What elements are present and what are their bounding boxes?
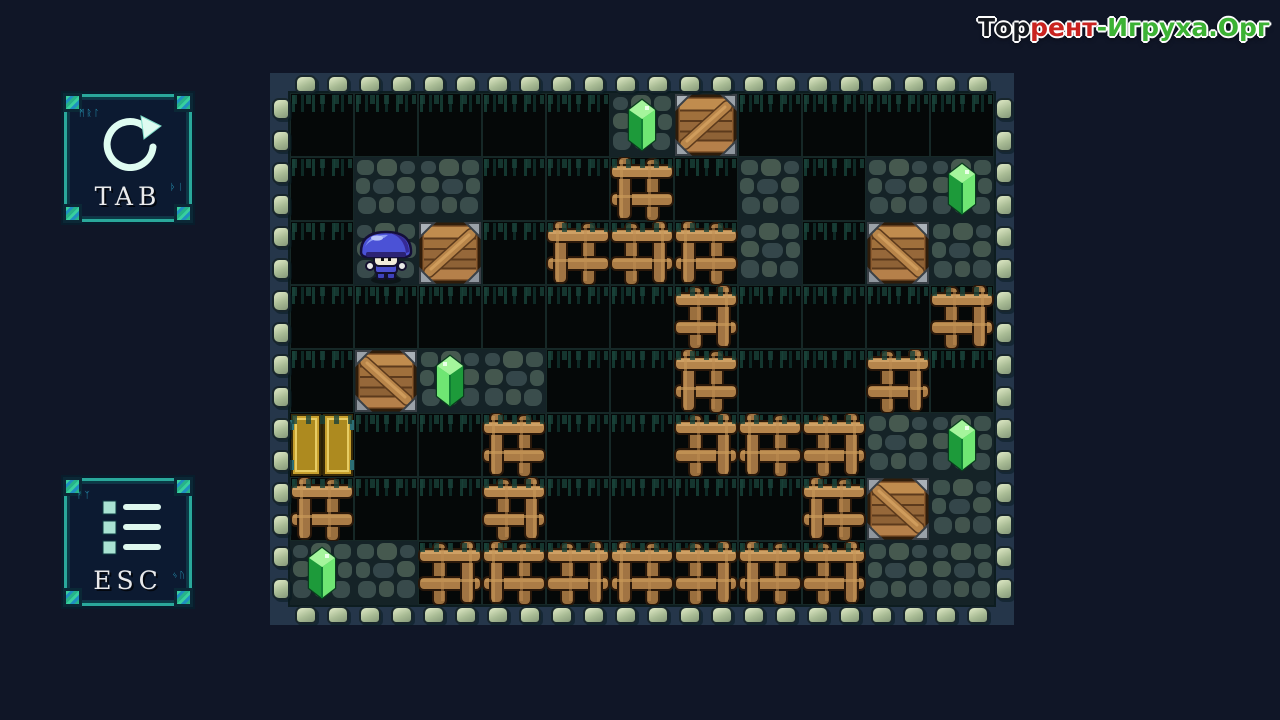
border-bump xyxy=(272,578,290,600)
wall-wood-lattice xyxy=(418,541,482,605)
border-bump xyxy=(775,75,797,93)
border-bump xyxy=(871,606,893,624)
tile-stone-floor xyxy=(866,541,930,605)
menu-hotkey-panel[interactable]: ᚠᛉ ᛃᚢ ESC xyxy=(64,478,192,606)
tile-void xyxy=(802,93,866,157)
tile-void xyxy=(290,285,354,349)
tile-stone-floor xyxy=(866,413,930,477)
wall-wood-lattice xyxy=(290,477,354,541)
border-bump xyxy=(903,75,925,93)
border-bump xyxy=(679,75,701,93)
border-bump xyxy=(551,606,573,624)
gem xyxy=(418,349,482,413)
wall-wood-lattice xyxy=(674,349,738,413)
border-bump xyxy=(995,482,1013,504)
border-bump xyxy=(272,162,290,184)
border-bump xyxy=(272,386,290,408)
border-bump xyxy=(327,75,349,93)
tile-void xyxy=(866,285,930,349)
border-bump xyxy=(295,606,317,624)
game-screen: Торрент-Игруха.Орг ᛗᚱᛚ ᚦᛁ TAB ᚠᛉ ᛃᚢ xyxy=(0,0,1280,720)
border-bump xyxy=(583,606,605,624)
border-bump xyxy=(647,606,669,624)
border-bump xyxy=(995,130,1013,152)
tile-void xyxy=(418,477,482,541)
tile-void xyxy=(546,349,610,413)
wall-wood-lattice xyxy=(802,477,866,541)
tile-void xyxy=(802,349,866,413)
tile-void xyxy=(546,285,610,349)
border-bump xyxy=(995,546,1013,568)
tile-void xyxy=(610,349,674,413)
wall-wood-lattice xyxy=(482,477,546,541)
wall-wood-lattice xyxy=(674,285,738,349)
wall-wood-lattice xyxy=(546,221,610,285)
tile-void xyxy=(418,285,482,349)
border-bump xyxy=(551,75,573,93)
border-bump xyxy=(995,322,1013,344)
decorative-rune: ᛗᚱᛚ xyxy=(79,109,101,119)
tile-stone-floor xyxy=(738,221,802,285)
border-bump xyxy=(272,322,290,344)
wall-wood-lattice xyxy=(738,413,802,477)
border-bump xyxy=(487,75,509,93)
border-bump xyxy=(272,514,290,536)
tile-void xyxy=(930,349,994,413)
gem xyxy=(930,413,994,477)
border-bump xyxy=(903,606,925,624)
tile-void xyxy=(418,93,482,157)
wall-wood-lattice xyxy=(610,221,674,285)
tile-void xyxy=(290,221,354,285)
border-bump xyxy=(647,75,669,93)
tile-stone-floor xyxy=(930,221,994,285)
wall-wood-lattice xyxy=(930,285,994,349)
border-bump xyxy=(423,75,445,93)
tile-void xyxy=(290,157,354,221)
tile-void xyxy=(930,93,994,157)
border-bump xyxy=(995,578,1013,600)
border-bump xyxy=(272,130,290,152)
wall-wood-lattice xyxy=(482,413,546,477)
border-bump xyxy=(272,418,290,440)
tile-void xyxy=(482,285,546,349)
border-bump xyxy=(995,98,1013,120)
border-bump xyxy=(995,194,1013,216)
tile-stone-floor xyxy=(930,477,994,541)
tile-void xyxy=(354,93,418,157)
restart-hotkey-panel[interactable]: ᛗᚱᛚ ᚦᛁ TAB xyxy=(64,94,192,222)
wall-wood-lattice xyxy=(610,541,674,605)
tile-void xyxy=(738,477,802,541)
tile-void xyxy=(738,93,802,157)
border-bump xyxy=(455,75,477,93)
border-bump xyxy=(359,75,381,93)
border-bump xyxy=(775,606,797,624)
border-bump xyxy=(423,606,445,624)
border-bump xyxy=(272,482,290,504)
border-bump xyxy=(995,290,1013,312)
tile-void xyxy=(546,157,610,221)
border-bump xyxy=(995,386,1013,408)
border-bump xyxy=(272,258,290,280)
border-bump xyxy=(807,75,829,93)
board-cells xyxy=(290,93,994,605)
border-bump xyxy=(995,354,1013,376)
menu-hotkey-label: ESC xyxy=(67,566,189,595)
tile-void xyxy=(482,93,546,157)
restart-circular-arrow-icon xyxy=(99,111,163,175)
border-bump xyxy=(391,75,413,93)
watermark: Торрент-Игруха.Орг xyxy=(978,13,1270,42)
border-bump xyxy=(743,606,765,624)
border-bump xyxy=(743,75,765,93)
crate xyxy=(866,477,930,541)
border-bump xyxy=(272,354,290,376)
tile-void xyxy=(802,221,866,285)
tile-void xyxy=(354,477,418,541)
border-bump xyxy=(272,546,290,568)
decorative-rune: ᚠᛉ xyxy=(77,491,92,501)
tile-void xyxy=(674,157,738,221)
border-bump xyxy=(967,75,989,93)
wall-wood-lattice xyxy=(674,221,738,285)
border-bump xyxy=(935,606,957,624)
border-bump xyxy=(839,606,861,624)
tile-void xyxy=(546,477,610,541)
watermark-part-red: рент xyxy=(1030,13,1097,42)
tile-void xyxy=(610,477,674,541)
border-bump xyxy=(995,450,1013,472)
border-bump xyxy=(391,606,413,624)
tile-stone-floor xyxy=(482,349,546,413)
border-bump xyxy=(995,514,1013,536)
menu-list-icon xyxy=(99,495,163,559)
border-bump xyxy=(272,194,290,216)
tile-void xyxy=(418,413,482,477)
crate xyxy=(674,93,738,157)
tile-void xyxy=(482,221,546,285)
crate xyxy=(866,221,930,285)
border-bump xyxy=(519,75,541,93)
tile-void xyxy=(802,285,866,349)
gem xyxy=(610,93,674,157)
border-bump xyxy=(272,290,290,312)
border-bump xyxy=(995,418,1013,440)
restart-hotkey-label: TAB xyxy=(67,182,189,211)
crate xyxy=(354,349,418,413)
wall-wood-lattice xyxy=(738,541,802,605)
gem xyxy=(930,157,994,221)
border-bump xyxy=(359,606,381,624)
border-bump xyxy=(679,606,701,624)
border-bump xyxy=(272,226,290,248)
border-bump xyxy=(711,606,733,624)
wall-wood-lattice xyxy=(866,349,930,413)
border-bump xyxy=(272,98,290,120)
wall-wood-lattice xyxy=(802,541,866,605)
border-bump xyxy=(995,226,1013,248)
panel-corner-gem xyxy=(174,93,193,112)
border-bump xyxy=(327,606,349,624)
tile-void xyxy=(610,285,674,349)
tile-void xyxy=(354,285,418,349)
border-bump xyxy=(871,75,893,93)
border-bump xyxy=(615,75,637,93)
wall-wood-lattice xyxy=(674,541,738,605)
wall-wood-lattice xyxy=(802,413,866,477)
tile-stone-floor xyxy=(866,157,930,221)
border-bump xyxy=(935,75,957,93)
player-character xyxy=(354,221,418,285)
tile-stone-floor xyxy=(930,541,994,605)
border-bump xyxy=(272,450,290,472)
exit-door xyxy=(290,413,354,477)
tile-stone-floor xyxy=(354,157,418,221)
tile-void xyxy=(738,349,802,413)
tile-void xyxy=(610,413,674,477)
game-board xyxy=(270,73,1014,625)
gem xyxy=(290,541,354,605)
tile-void xyxy=(546,93,610,157)
tile-void xyxy=(738,285,802,349)
crate xyxy=(418,221,482,285)
tile-void xyxy=(546,413,610,477)
border-bump xyxy=(519,606,541,624)
border-bump xyxy=(583,75,605,93)
panel-corner-gem xyxy=(174,477,193,496)
border-bump xyxy=(455,606,477,624)
wall-wood-lattice xyxy=(674,413,738,477)
border-bump xyxy=(807,606,829,624)
wall-wood-lattice xyxy=(546,541,610,605)
tile-stone-floor xyxy=(418,157,482,221)
border-bump xyxy=(295,75,317,93)
wall-wood-lattice xyxy=(610,157,674,221)
tile-void xyxy=(802,157,866,221)
tile-void xyxy=(354,413,418,477)
watermark-part-white: Тор xyxy=(978,13,1030,42)
tile-void xyxy=(290,93,354,157)
wall-wood-lattice xyxy=(482,541,546,605)
watermark-part-green: -Игруха.Орг xyxy=(1097,13,1270,42)
tile-void xyxy=(290,349,354,413)
border-bump xyxy=(487,606,509,624)
tile-void xyxy=(866,93,930,157)
tile-void xyxy=(674,477,738,541)
border-bump xyxy=(711,75,733,93)
tile-stone-floor xyxy=(354,541,418,605)
border-bump xyxy=(967,606,989,624)
border-bump xyxy=(995,162,1013,184)
tile-void xyxy=(482,157,546,221)
border-bump xyxy=(615,606,637,624)
tile-stone-floor xyxy=(738,157,802,221)
border-bump xyxy=(995,258,1013,280)
border-bump xyxy=(839,75,861,93)
